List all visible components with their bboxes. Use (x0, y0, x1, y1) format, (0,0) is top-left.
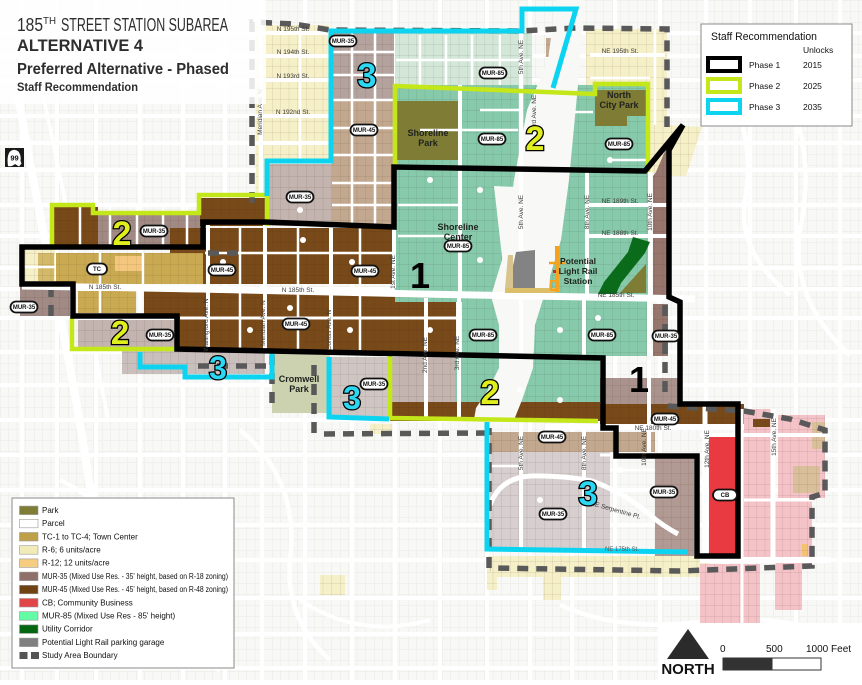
svg-text:Park: Park (289, 384, 310, 394)
svg-text:R-12; 12 units/acre: R-12; 12 units/acre (42, 559, 110, 568)
svg-text:MUR-45: MUR-45 (541, 435, 564, 441)
svg-text:MUR-45: MUR-45 (654, 417, 677, 423)
svg-text:Potential Light Rail parking g: Potential Light Rail parking garage (42, 638, 165, 647)
svg-text:MUR-35: MUR-35 (149, 333, 172, 339)
svg-text:Utility Corridor: Utility Corridor (42, 625, 93, 634)
svg-text:MUR-35: MUR-35 (332, 39, 355, 45)
svg-text:STREET STATION SUBAREA: STREET STATION SUBAREA (61, 14, 228, 35)
svg-text:ALTERNATIVE 4: ALTERNATIVE 4 (17, 36, 144, 55)
svg-text:Light Rail: Light Rail (559, 266, 598, 276)
svg-text:10th Ave. NE: 10th Ave. NE (647, 192, 654, 230)
svg-text:CB; Community Business: CB; Community Business (42, 598, 133, 607)
svg-text:Staff Recommendation: Staff Recommendation (17, 80, 138, 94)
svg-text:Meridian Ave. N: Meridian Ave. N (260, 300, 267, 346)
svg-text:5th Ave. NE: 5th Ave. NE (518, 39, 525, 74)
svg-text:MUR-35: MUR-35 (143, 229, 166, 235)
svg-text:Staff Recommendation: Staff Recommendation (711, 31, 817, 43)
svg-text:MUR-35: MUR-35 (542, 512, 565, 518)
svg-text:Park: Park (42, 506, 59, 515)
svg-text:3: 3 (209, 350, 227, 386)
svg-text:2035: 2035 (803, 102, 822, 112)
svg-text:MUR-45: MUR-45 (353, 128, 376, 134)
svg-text:Unlocks: Unlocks (803, 45, 833, 55)
svg-text:N 194th St.: N 194th St. (277, 49, 310, 56)
svg-text:2: 2 (526, 120, 545, 158)
svg-text:Corliss Ave. N: Corliss Ave. N (326, 309, 333, 350)
svg-text:MUR-35: MUR-35 (363, 382, 386, 388)
svg-text:N 185th St.: N 185th St. (282, 287, 315, 294)
svg-text:99: 99 (10, 154, 18, 163)
svg-text:3: 3 (358, 57, 377, 95)
svg-text:MUR-85: MUR-85 (591, 333, 614, 339)
svg-text:MUR-45: MUR-45 (211, 268, 234, 274)
svg-text:MUR-85: MUR-85 (472, 333, 495, 339)
svg-text:TC-1 to TC-4; Town Center: TC-1 to TC-4; Town Center (42, 532, 138, 541)
svg-text:Park: Park (418, 138, 439, 148)
svg-text:Preferred Alternative - Phased: Preferred Alternative - Phased (17, 61, 229, 78)
svg-text:2: 2 (113, 215, 132, 253)
svg-text:15th Ave. NE: 15th Ave. NE (771, 417, 778, 455)
svg-text:3rd Ave. NE: 3rd Ave. NE (454, 335, 461, 370)
svg-text:Phase 1: Phase 1 (749, 60, 780, 70)
svg-text:NE 189th St.: NE 189th St. (602, 198, 639, 205)
svg-text:MUR-35 (Mixed Use Res. - 35' h: MUR-35 (Mixed Use Res. - 35' height, bas… (42, 572, 228, 581)
svg-text:MUR-35: MUR-35 (289, 195, 312, 201)
svg-text:N 185th St.: N 185th St. (89, 284, 122, 291)
svg-text:MUR-35: MUR-35 (655, 334, 678, 340)
svg-text:8th Ave. NE: 8th Ave. NE (584, 194, 591, 229)
svg-text:2: 2 (481, 374, 500, 412)
svg-text:N 193rd St.: N 193rd St. (277, 73, 310, 80)
svg-text:1: 1 (629, 359, 649, 400)
svg-text:3: 3 (343, 380, 361, 416)
svg-text:MUR-85 (Mixed Use Res - 85' he: MUR-85 (Mixed Use Res - 85' height) (42, 612, 175, 621)
svg-text:Shoreline: Shoreline (437, 222, 478, 232)
svg-text:MUR-85: MUR-85 (608, 142, 631, 148)
svg-text:Wallingford Ave. N: Wallingford Ave. N (203, 298, 210, 351)
svg-text:NE 188th St.: NE 188th St. (602, 230, 639, 237)
svg-text:NE 175th St.: NE 175th St. (605, 547, 639, 553)
svg-text:MUR-45 (Mixed Use Res. - 45' h: MUR-45 (Mixed Use Res. - 45' height, bas… (42, 585, 228, 594)
svg-text:NORTH: NORTH (661, 661, 714, 678)
svg-text:City Park: City Park (599, 100, 639, 110)
svg-text:MUR-85: MUR-85 (482, 71, 505, 77)
svg-text:Station: Station (564, 276, 593, 286)
svg-text:North: North (607, 90, 631, 100)
svg-text:2015: 2015 (803, 60, 822, 70)
svg-text:1000 Feet: 1000 Feet (806, 644, 851, 655)
svg-text:1: 1 (410, 255, 430, 296)
svg-text:Cromwell: Cromwell (279, 374, 320, 384)
svg-text:0: 0 (720, 644, 726, 655)
svg-text:12th Ave. NE: 12th Ave. NE (704, 429, 711, 467)
svg-text:Shoreline: Shoreline (407, 128, 448, 138)
svg-text:3: 3 (579, 475, 598, 513)
svg-text:CB: CB (721, 493, 730, 499)
svg-text:5th Ave. NE: 5th Ave. NE (518, 194, 525, 229)
svg-text:MUR-35: MUR-35 (653, 490, 676, 496)
svg-text:N 192nd St.: N 192nd St. (276, 109, 311, 116)
svg-text:R-6; 6 units/acre: R-6; 6 units/acre (42, 546, 101, 555)
svg-text:10th Ave. NE: 10th Ave. NE (641, 427, 648, 465)
svg-text:Study Area Boundary: Study Area Boundary (42, 651, 118, 660)
svg-text:MUR-35: MUR-35 (13, 305, 36, 311)
svg-text:MUR-45: MUR-45 (285, 322, 308, 328)
svg-text:8th Ave. NE: 8th Ave. NE (581, 435, 588, 470)
svg-text:185: 185 (17, 14, 43, 35)
svg-text:5th Ave. NE: 5th Ave. NE (518, 435, 525, 470)
svg-text:2nd Ave. NE: 2nd Ave. NE (422, 336, 429, 373)
svg-text:MUR-85: MUR-85 (481, 137, 504, 143)
svg-text:NE 195th St.: NE 195th St. (602, 48, 639, 55)
svg-text:500: 500 (766, 644, 783, 655)
svg-text:2: 2 (111, 314, 129, 351)
svg-text:Phase 2: Phase 2 (749, 81, 780, 91)
svg-text:MUR-45: MUR-45 (354, 269, 377, 275)
svg-text:1st Ave. NE: 1st Ave. NE (390, 254, 397, 289)
svg-text:N 195th St.: N 195th St. (277, 26, 310, 33)
svg-text:TC: TC (93, 267, 102, 273)
svg-text:2025: 2025 (803, 81, 822, 91)
svg-text:TH: TH (43, 15, 56, 27)
svg-text:MUR-85: MUR-85 (447, 244, 470, 250)
svg-text:Phase 3: Phase 3 (749, 102, 780, 112)
svg-text:Parcel: Parcel (42, 519, 65, 528)
svg-text:NE 185th St.: NE 185th St. (598, 292, 635, 299)
svg-text:Potential: Potential (560, 256, 596, 266)
